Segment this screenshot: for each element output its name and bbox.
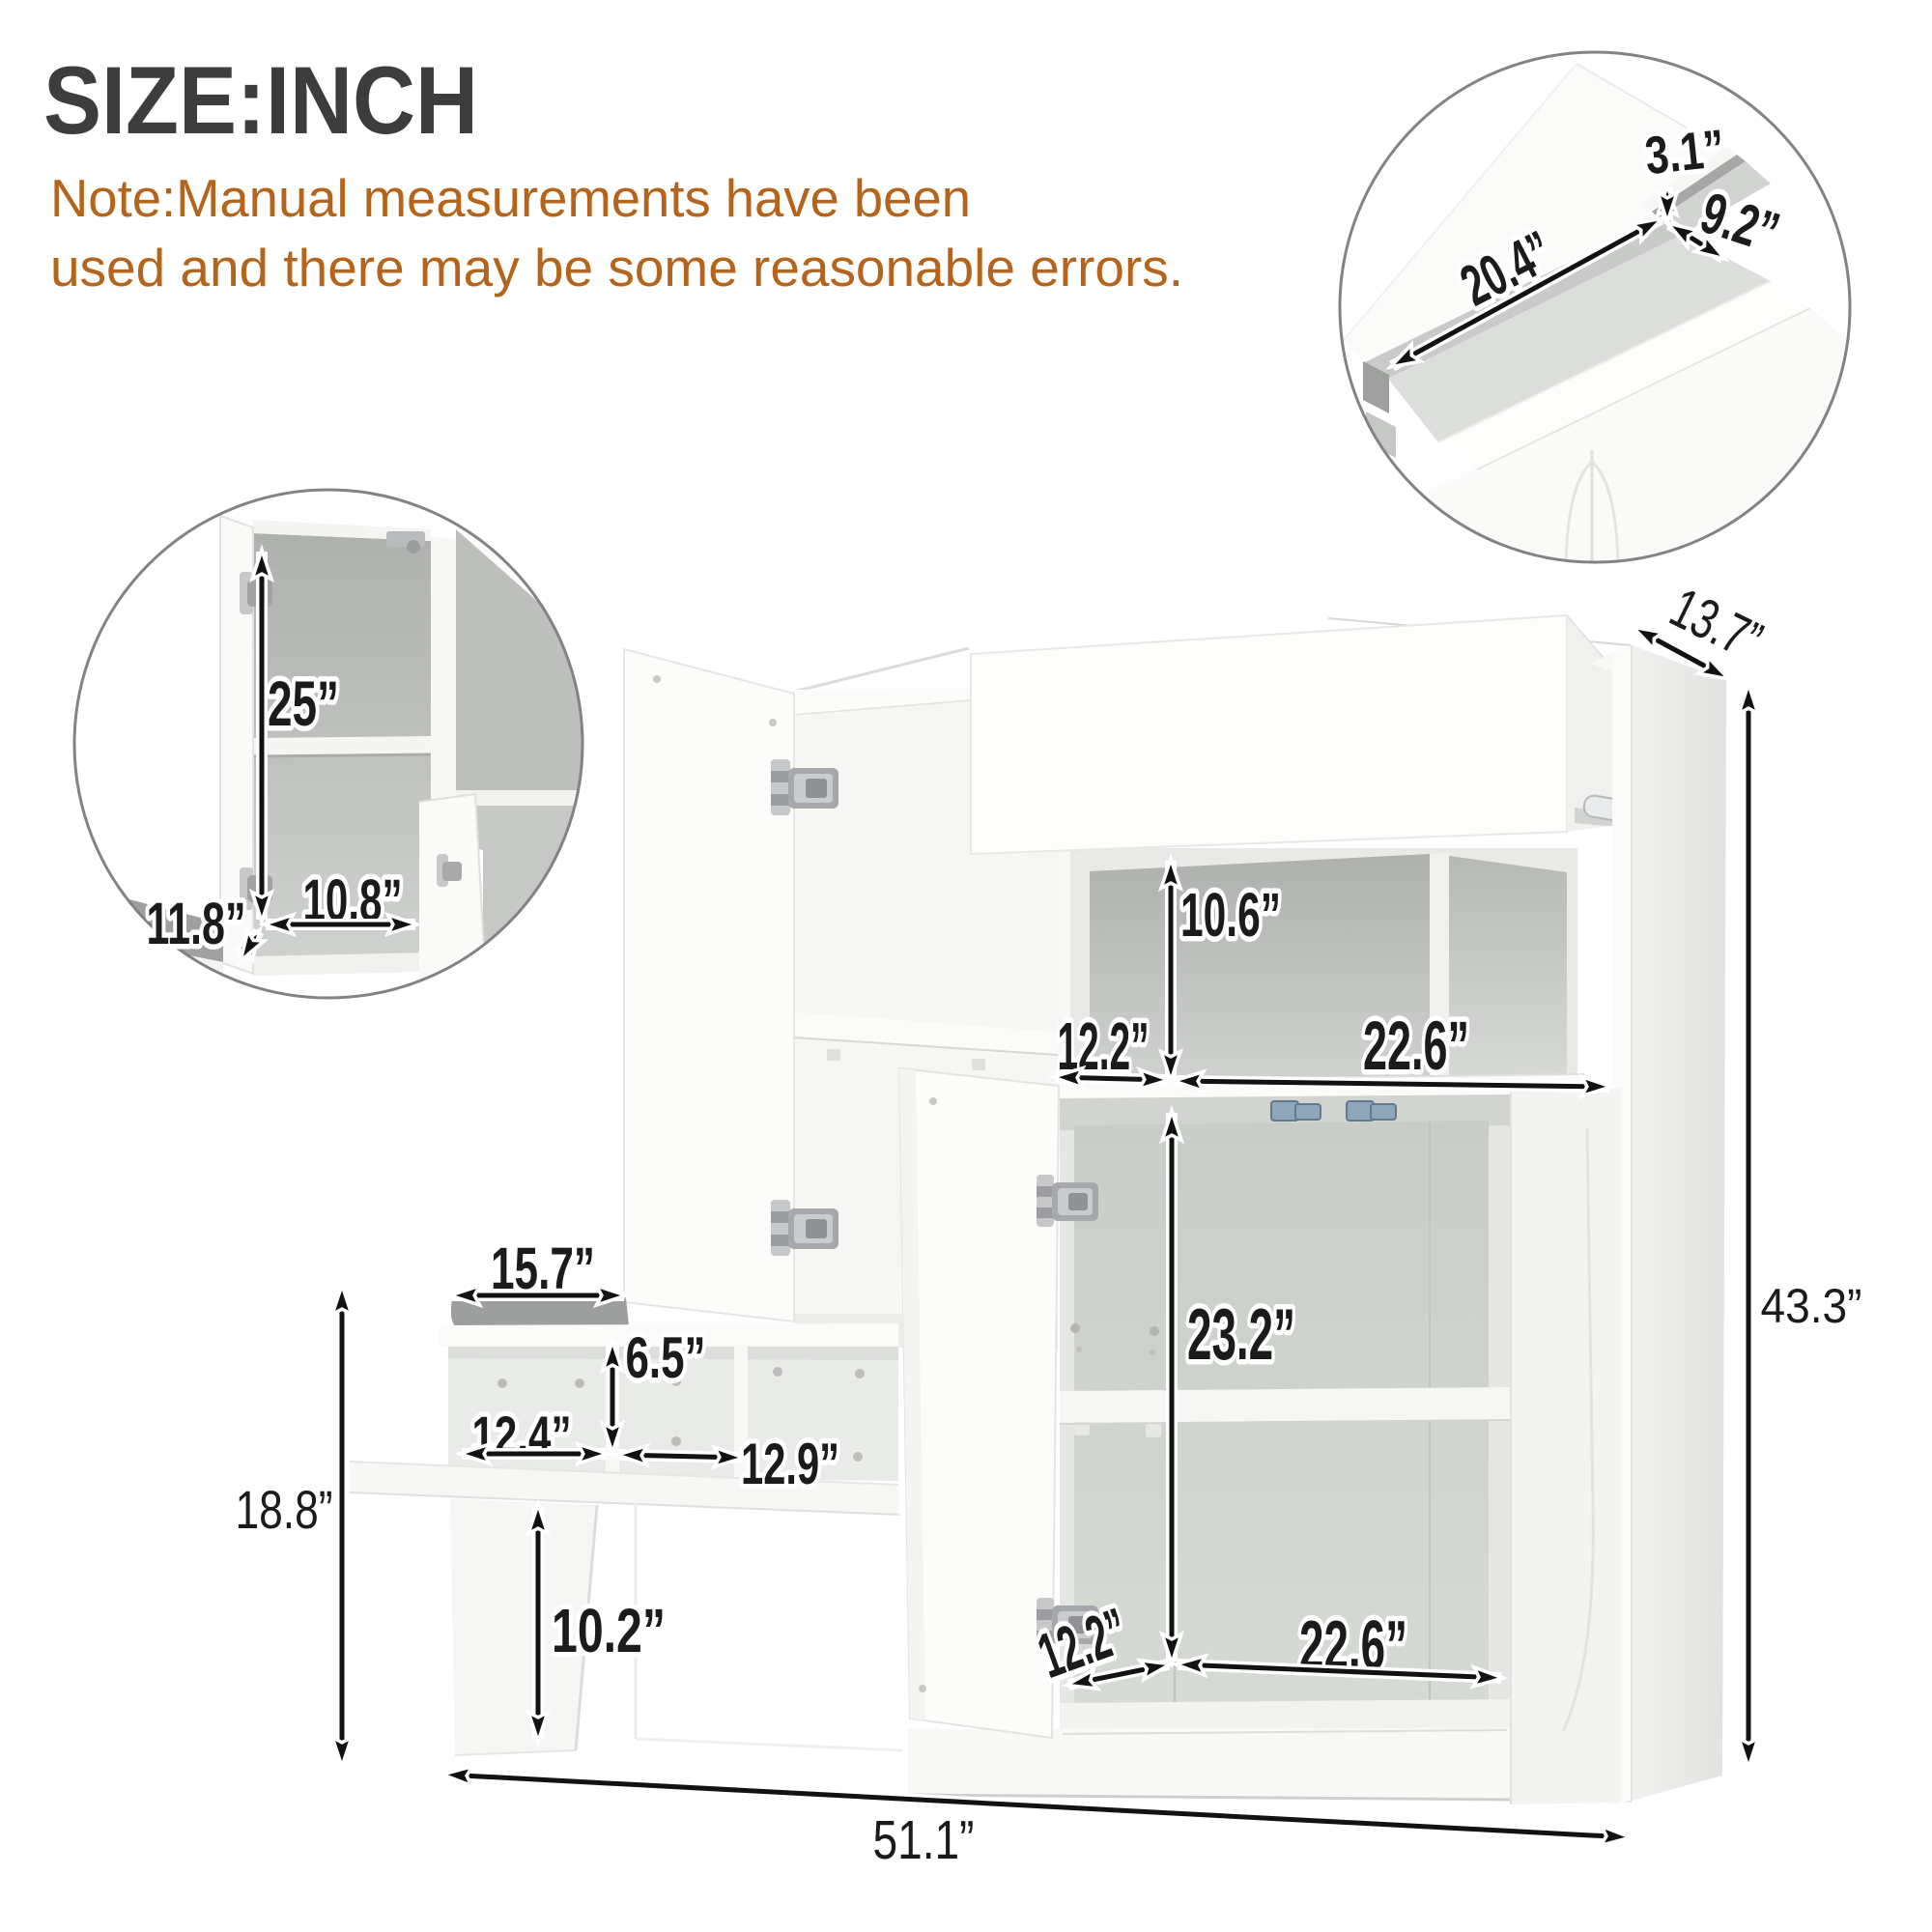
svg-text:23.2”: 23.2” [1187, 1293, 1295, 1375]
svg-text:11.8”: 11.8” [147, 891, 246, 956]
svg-text:Note:Manual measurements have: Note:Manual measurements have been [50, 168, 971, 228]
svg-text:10.2”: 10.2” [552, 1596, 666, 1665]
svg-text:3.1”: 3.1” [1642, 118, 1727, 185]
svg-text:22.6”: 22.6” [1363, 1009, 1469, 1085]
svg-text:18.8”: 18.8” [236, 1479, 333, 1540]
svg-text:51.1”: 51.1” [873, 1809, 975, 1871]
svg-text:43.3”: 43.3” [1761, 1279, 1862, 1333]
svg-text:used and there may be some rea: used and there may be some reasonable er… [50, 238, 1183, 298]
svg-text:10.6”: 10.6” [1180, 880, 1281, 950]
svg-text:12.9”: 12.9” [741, 1432, 839, 1496]
svg-text:6.5”: 6.5” [626, 1325, 706, 1390]
svg-text:25”: 25” [268, 668, 339, 739]
svg-text:SIZE:INCH: SIZE:INCH [43, 46, 478, 154]
